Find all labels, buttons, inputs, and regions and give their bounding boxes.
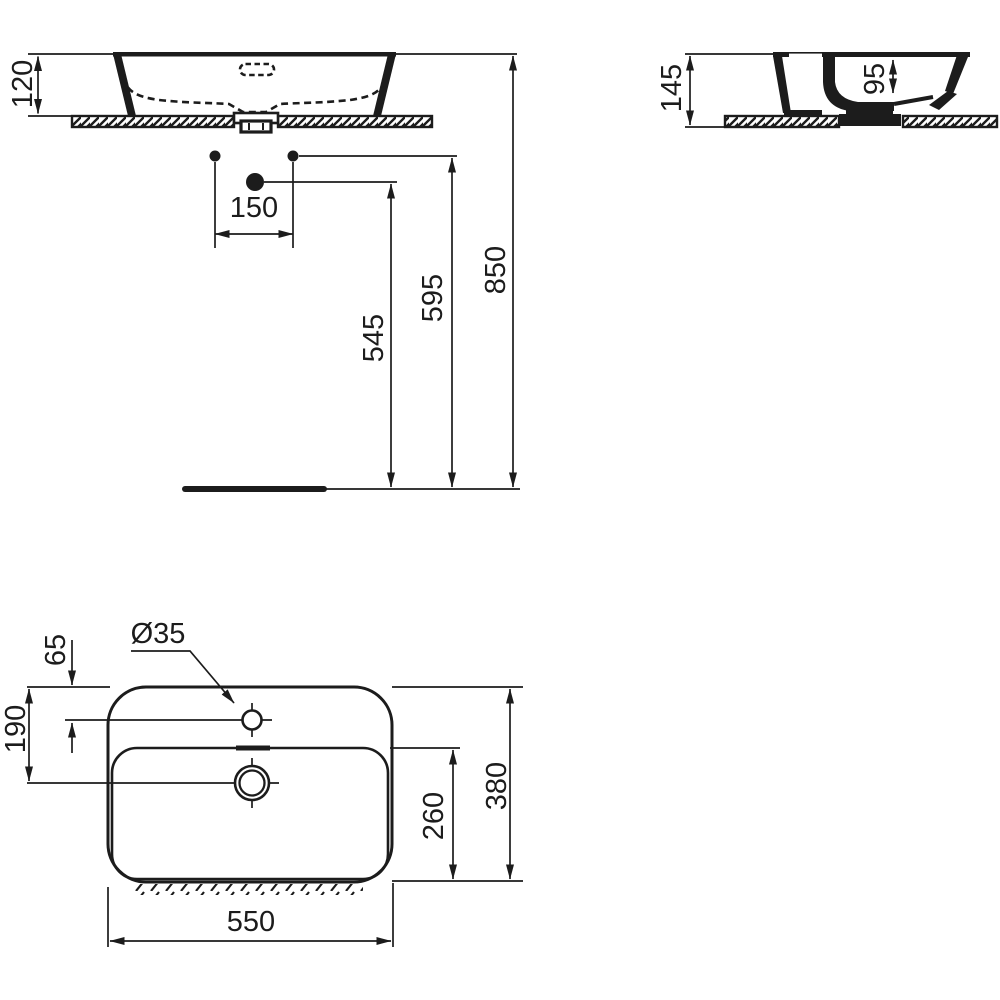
dim-supply-height: 595 (417, 158, 452, 487)
basin-right-wall (373, 54, 396, 116)
dim-inner-bowl-depth: 260 (418, 750, 453, 879)
dim-595-label: 595 (417, 274, 449, 322)
side-rim-channel-gap (789, 54, 822, 57)
dim-150-label: 150 (230, 192, 278, 224)
dim-120-label: 120 (7, 60, 39, 108)
tap-hole-circle (243, 711, 262, 730)
tap-hole-leader-line (131, 651, 234, 703)
side-bowl-floor-line (894, 97, 933, 104)
dim-380-label: 380 (481, 762, 513, 810)
washbasin-dimension-drawing: 120 150 545 595 850 (0, 0, 1000, 1000)
countertop-hatch-left (72, 116, 234, 127)
side-countertop-hatch-right (903, 116, 997, 127)
dim-65-label: 65 (40, 634, 72, 666)
side-rear-wall (945, 52, 970, 94)
countertop-hatch-right (278, 116, 432, 127)
dim-counter-thickness: 120 (7, 57, 39, 114)
side-front-shell-wall (773, 56, 791, 113)
dim-rim-height: 850 (480, 56, 513, 487)
side-section-view: 145 95 (656, 52, 997, 127)
dim-850-label: 850 (480, 246, 512, 294)
dim-545-label: 545 (358, 314, 390, 362)
fixing-point-left (210, 151, 221, 162)
drain-body-front (241, 121, 271, 132)
dim-overall-depth: 380 (481, 689, 513, 879)
dim-drain-center-offset: 190 (0, 689, 32, 781)
basin-rim-front (113, 52, 396, 57)
front-view: 120 150 545 595 850 (7, 52, 520, 489)
fixing-point-right (288, 151, 299, 162)
overflow-slot-dashed (240, 64, 274, 75)
dim-145-label: 145 (656, 64, 688, 112)
overflow-slot-plan (236, 746, 270, 751)
technical-drawing-page: 120 150 545 595 850 (0, 0, 1000, 1000)
basin-left-wall (113, 54, 136, 116)
dim-drain-height: 545 (358, 184, 391, 487)
dim-tap-hole-spacing: 150 (215, 192, 293, 234)
side-drain-trap (839, 106, 901, 126)
bowl-hidden-contour-dashed (123, 77, 386, 112)
dim-550-label: 550 (227, 906, 275, 938)
tap-hole-diameter-label: Ø35 (131, 618, 186, 650)
dim-190-label: 190 (0, 705, 32, 753)
dim-tap-hole-offset: 65 (40, 634, 72, 753)
plan-view: Ø35 65 190 260 380 (0, 618, 523, 947)
dim-bowl-depth: 95 (859, 60, 893, 95)
dim-basin-height: 145 (656, 56, 690, 125)
dim-95-label: 95 (859, 63, 891, 95)
side-countertop-hatch-left (725, 116, 839, 127)
wall-hatch-plan (133, 884, 363, 895)
drain-connection-point (246, 173, 264, 191)
dim-260-label: 260 (418, 792, 450, 840)
